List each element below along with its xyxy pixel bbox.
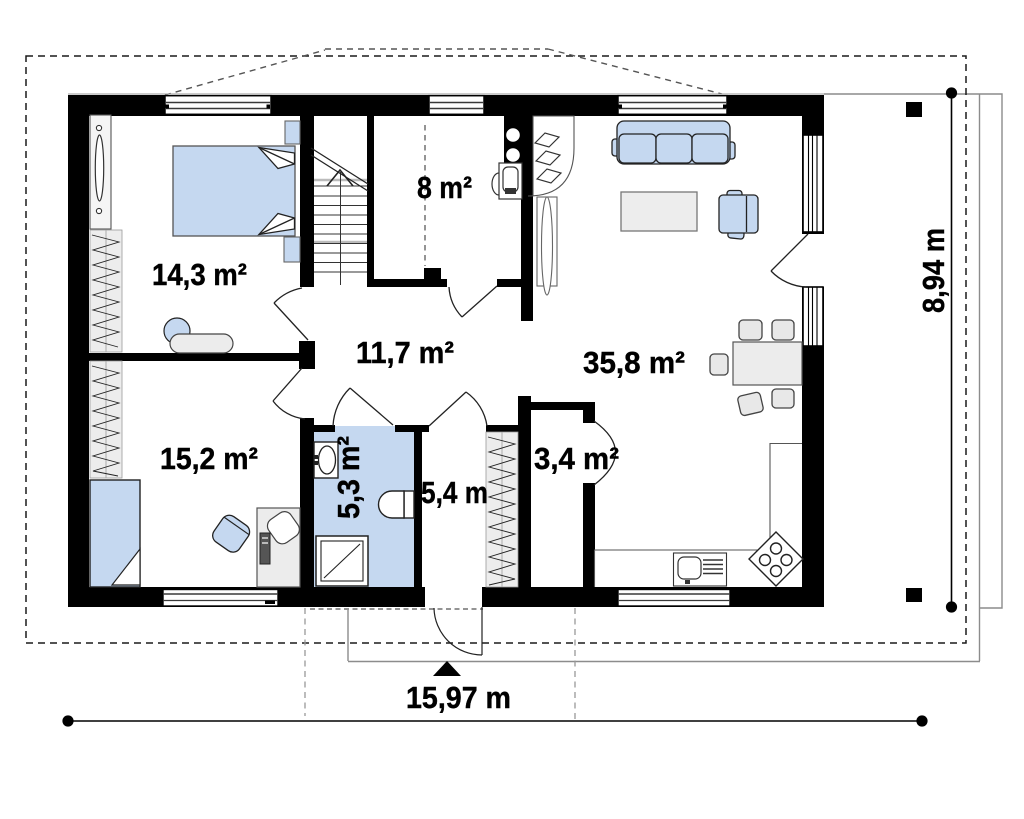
svg-text:11,7 m²: 11,7 m²	[356, 336, 454, 370]
svg-text:15,2 m²: 15,2 m²	[160, 442, 258, 476]
svg-text:5,3 m²: 5,3 m²	[332, 436, 366, 519]
svg-text:3,4 m²: 3,4 m²	[534, 442, 619, 476]
svg-text:5,4 m: 5,4 m	[421, 476, 488, 510]
svg-text:8,94 m: 8,94 m	[917, 228, 951, 313]
svg-text:15,97 m: 15,97 m	[406, 681, 511, 715]
svg-text:14,3 m²: 14,3 m²	[152, 258, 247, 292]
svg-text:8 m²: 8 m²	[417, 171, 472, 205]
svg-text:35,8 m²: 35,8 m²	[583, 346, 685, 380]
